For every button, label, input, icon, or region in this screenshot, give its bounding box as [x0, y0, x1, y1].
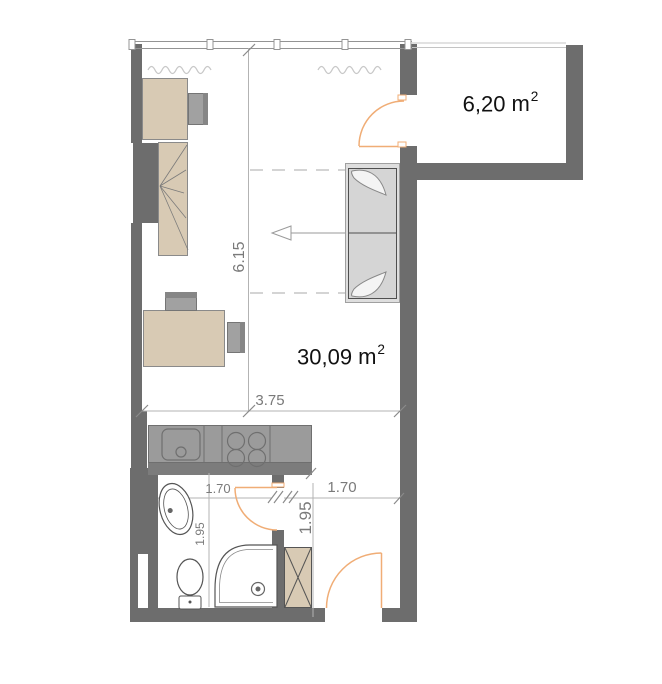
wall-left-column	[133, 143, 158, 223]
wardrobe-left	[158, 142, 188, 256]
hall-cabinet	[284, 547, 312, 608]
wall-balcony-right	[566, 45, 583, 180]
balcony-glazing	[412, 43, 566, 48]
kitchen-counter	[148, 425, 312, 463]
dashed-zone-lines	[250, 170, 345, 293]
wall-shaft-cap	[138, 548, 148, 554]
bed-mattress	[348, 168, 397, 299]
wall-right-top-post	[400, 44, 417, 95]
wall-left-shaft-outer	[130, 548, 138, 610]
kitchen-counter-front	[148, 463, 312, 475]
living-area-sup: 2	[377, 342, 385, 357]
balcony-area-unit: m	[511, 91, 529, 116]
dim-room-height: 6.15	[231, 237, 249, 277]
dim-hall-depth: 1.95	[296, 496, 316, 540]
wall-left-thick-block	[130, 468, 158, 548]
desk-top-left	[142, 78, 188, 140]
living-area-value: 30,09	[297, 344, 352, 369]
living-area-label: 30,09m2	[278, 344, 403, 370]
desk-middle-left	[143, 310, 225, 367]
wall-left-middle	[131, 223, 142, 411]
wall-left-top	[131, 44, 142, 143]
living-area-unit: m	[358, 344, 376, 369]
wall-bottom-left	[130, 608, 325, 622]
wall-bathroom-right	[272, 530, 284, 610]
dim-bath-depth: 1.95	[193, 514, 207, 554]
chair-back-bar	[240, 322, 245, 353]
wall-bottom-right	[382, 608, 400, 622]
drain-icon	[252, 583, 265, 596]
wall-left-kitchen	[131, 411, 147, 468]
wall-left-shaft-inner	[148, 548, 158, 610]
plan-symbols	[0, 0, 662, 684]
dim-hall-width: 1.70	[320, 479, 364, 496]
balcony-area-value: 6,20	[463, 91, 506, 116]
window-band	[129, 40, 412, 50]
dim-room-width: 3.75	[248, 392, 292, 409]
radiator-icon	[148, 67, 381, 74]
wall-balcony-bottom	[400, 163, 583, 180]
balcony-area-label: 6,20m2	[440, 91, 560, 117]
wall-bathroom-post	[272, 475, 284, 488]
wall-right-main	[400, 180, 417, 622]
chair-back-bar	[203, 93, 208, 125]
balcony-door-arc	[359, 95, 406, 147]
shower-icon	[215, 545, 277, 607]
entrance-door-arc	[327, 553, 382, 608]
toilet-icon	[177, 559, 203, 609]
bathroom-door-arc	[235, 483, 284, 530]
arrow-icon	[272, 226, 345, 240]
balcony-area-sup: 2	[531, 89, 539, 104]
washbasin-icon	[154, 480, 198, 539]
chair-back-bar	[165, 292, 197, 298]
floor-plan: 6,20m2 30,09m2 6.15 3.75 1.70 1.70 1.95 …	[0, 0, 662, 684]
dim-bath-width: 1.70	[200, 481, 236, 496]
